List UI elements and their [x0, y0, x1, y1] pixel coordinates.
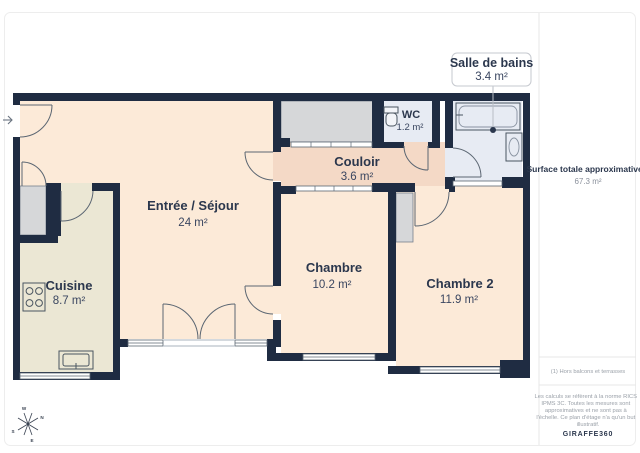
sidebar-disclaimer: Les calculs se réfèrent à la norme RICS …	[535, 385, 640, 428]
sliding-front-chambre	[296, 186, 372, 191]
label-cuisine-area: 8.7 m²	[53, 295, 86, 307]
label-chambre2-name: Chambre 2	[426, 276, 493, 291]
compass-n: N	[40, 415, 44, 420]
cuisine-door-gap	[61, 183, 92, 191]
compass-w: W	[22, 406, 27, 411]
window-cuisine	[20, 373, 90, 379]
label-wc-area: 1.2 m²	[397, 122, 424, 133]
callout-leader-dot	[490, 127, 496, 133]
label-chambre-name: Chambre	[306, 260, 362, 275]
threshold-french-door	[163, 340, 235, 346]
label-chambre2-area: 11.9 m²	[440, 294, 478, 306]
floorplan-page: Entrée / Séjour 24 m² Cuisine 8.7 m² Cou…	[0, 0, 640, 453]
window-sejour-right	[235, 340, 267, 346]
window-chambre2	[420, 367, 500, 373]
surface-total-label: Surface totale approximative(1)	[527, 164, 640, 174]
label-couloir-name: Couloir	[334, 154, 380, 169]
room-sdb-floor	[453, 101, 522, 183]
partition-sdb-chambre2	[453, 181, 502, 186]
hall-closet	[281, 101, 378, 142]
compass-s: S	[11, 429, 14, 434]
label-cuisine-name: Cuisine	[46, 278, 93, 293]
wc-door-gap	[404, 142, 428, 148]
chambre2-wardrobe	[396, 193, 413, 242]
brand-logo: GIRAFFE360	[563, 431, 613, 438]
sidebar: Surface totale approximative(1) 67.3 m² …	[527, 13, 640, 445]
window-chambre	[303, 354, 375, 360]
couloir-door-gap	[273, 152, 281, 181]
sdb-door-gap	[445, 148, 453, 177]
chambre-door-gap	[273, 286, 281, 314]
compass-e: E	[30, 438, 33, 443]
window-sejour-left	[128, 340, 163, 346]
surface-total-value: 67.3 m²	[574, 177, 601, 186]
floorplan-canvas: Entrée / Séjour 24 m² Cuisine 8.7 m² Cou…	[0, 0, 640, 453]
label-chambre-area: 10.2 m²	[313, 279, 352, 291]
label-wc-name: WC	[402, 109, 420, 121]
compass-rose: W N S E	[11, 406, 44, 443]
sidebar-footnote: (1) Hors balcons et terrasses	[551, 369, 626, 375]
callout-title: Salle de bains	[450, 56, 533, 70]
sliding-front-hall-closet	[291, 142, 372, 147]
callout-area: 3.4 m²	[475, 71, 508, 83]
kitchen-closet	[20, 186, 46, 235]
label-entree-name: Entrée / Séjour	[147, 198, 239, 213]
label-entree-area: 24 m²	[178, 217, 208, 229]
label-couloir-area: 3.6 m²	[341, 171, 374, 183]
